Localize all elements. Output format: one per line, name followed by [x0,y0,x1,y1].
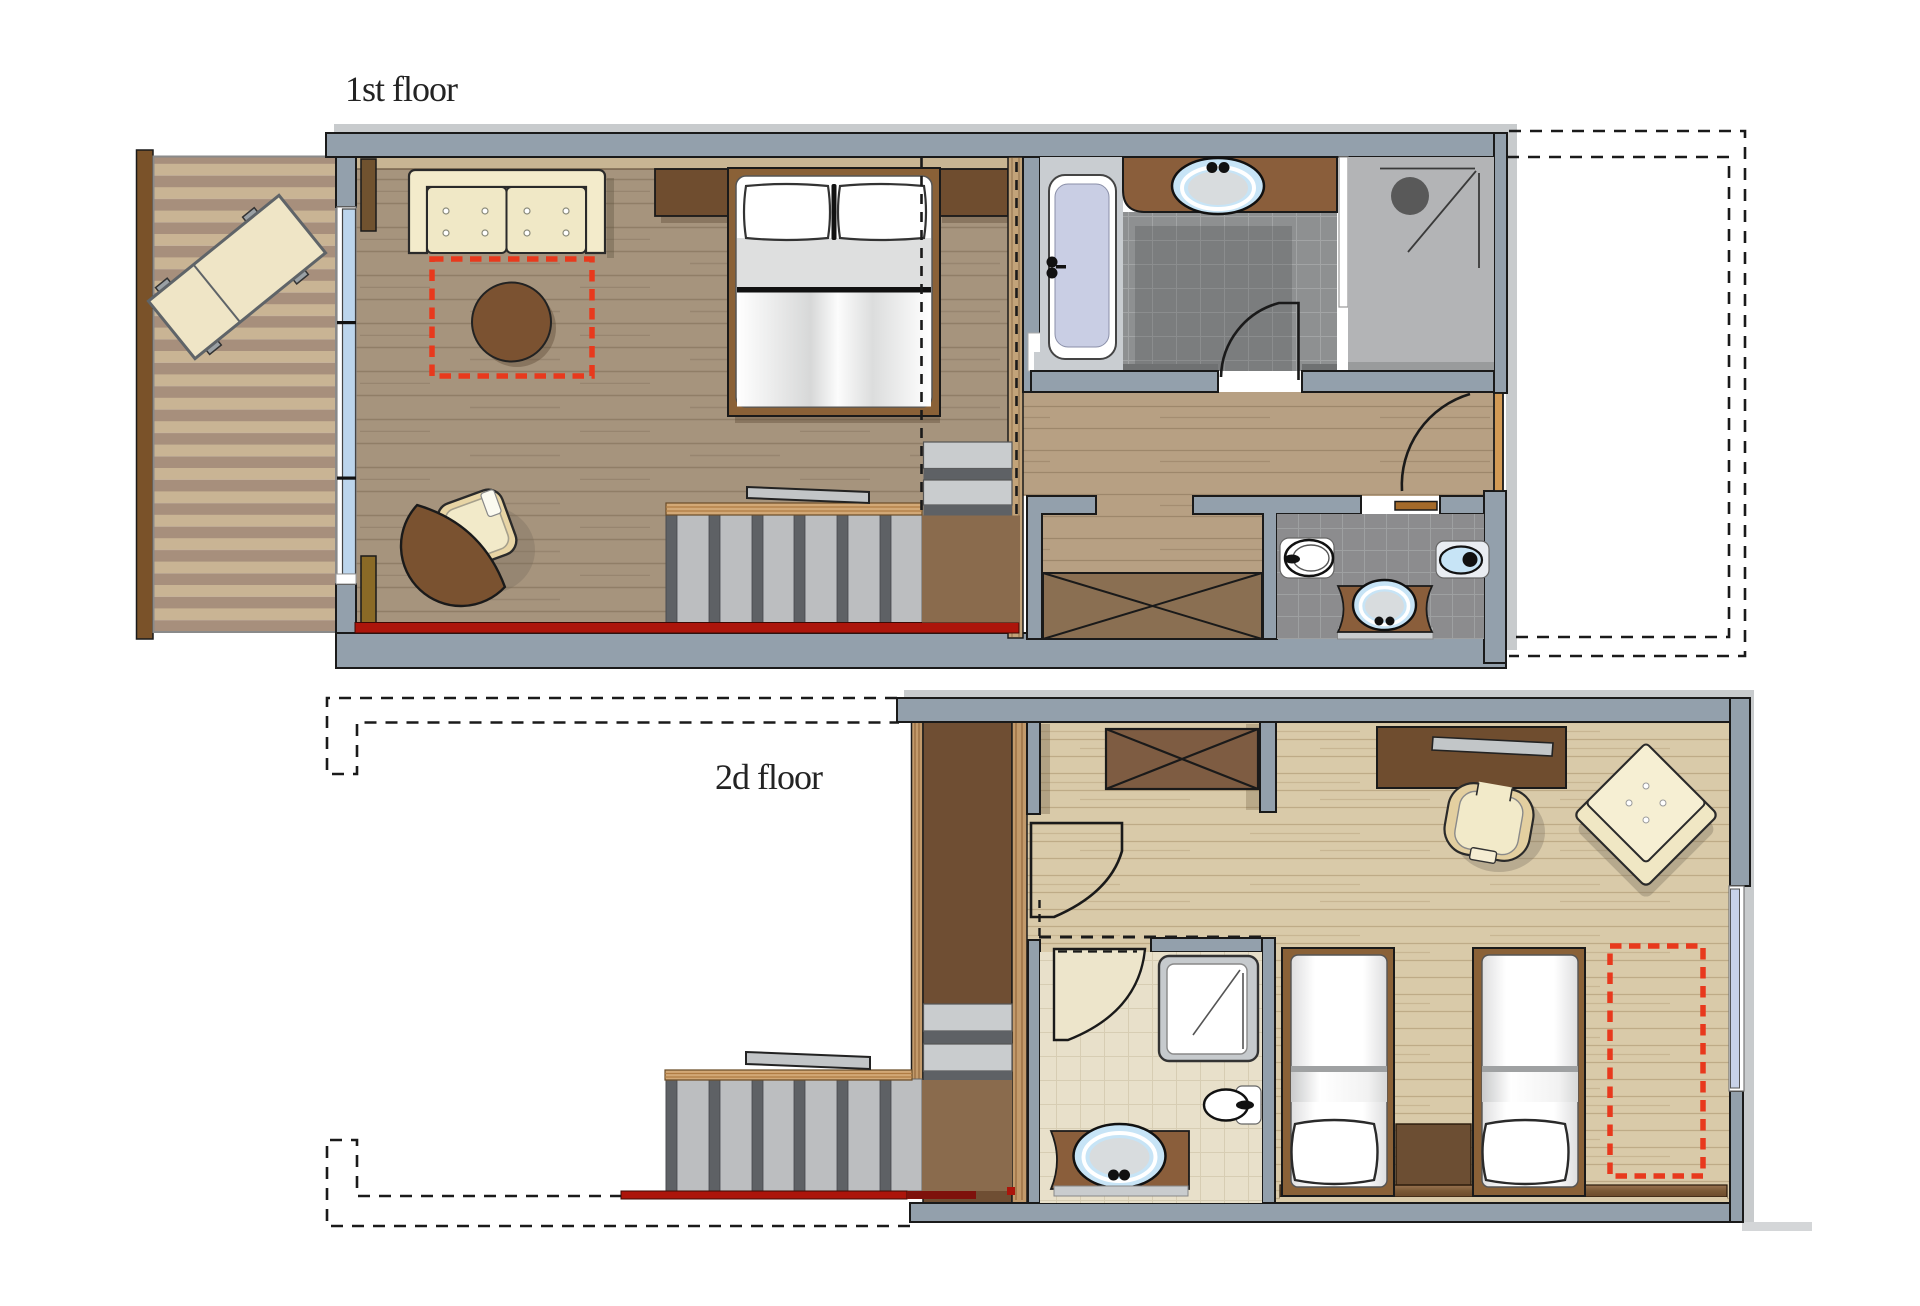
svg-text:2d floor: 2d floor [715,757,823,797]
svg-text:1st floor: 1st floor [345,69,458,109]
